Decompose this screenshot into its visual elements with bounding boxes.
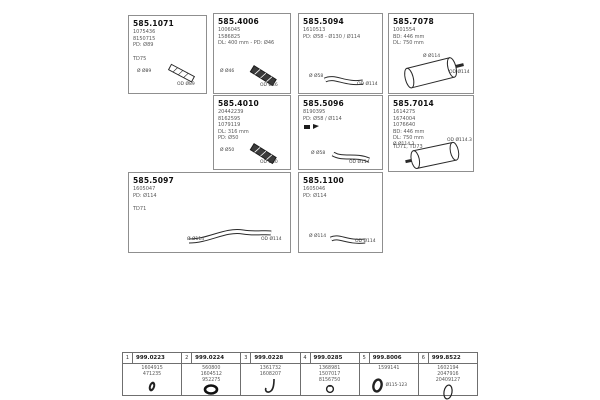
accessory-header: 4 999.0285 bbox=[301, 353, 359, 364]
part-number: 585.1100 bbox=[303, 176, 382, 185]
accessories-table: 1 999.0223 1604915 471235 2 999.0 bbox=[122, 352, 478, 396]
diameter-label: OD Ø114 bbox=[261, 237, 282, 242]
part-box-585-5094: 585.5094 1610513 PD: Ø58 - Ø130 / Ø114 Ø… bbox=[298, 13, 383, 94]
accessory-cell-6: 6 999.8522 1602194 2047916 20409127 bbox=[419, 353, 477, 395]
accessory-header: 6 999.8522 bbox=[419, 353, 477, 364]
part-number: 585.4006 bbox=[218, 17, 290, 26]
clamp-bolt-icon bbox=[325, 384, 335, 394]
elbow-pipe-diagram bbox=[319, 72, 371, 90]
accessory-part-number: 999.0285 bbox=[314, 353, 343, 363]
diameter-label: Ø Ø46 bbox=[220, 69, 234, 74]
clamp-size-label: Ø115-123 bbox=[386, 383, 407, 388]
part-code: DL: 400 mm - PD: Ø46 bbox=[218, 40, 290, 47]
part-number: 585.5097 bbox=[133, 176, 290, 185]
diameter-label: OD Ø46 bbox=[260, 83, 278, 88]
part-code: DL: 750 mm bbox=[393, 40, 473, 47]
diameter-label: Ø Ø89 bbox=[137, 69, 151, 74]
item-number: 3 bbox=[241, 353, 251, 363]
catalog-page: 585.1071 1075436 8150715 PD: Ø89 TD75 Ø … bbox=[0, 0, 600, 400]
clamp-icon bbox=[146, 380, 158, 393]
accessory-codes: 1599141 bbox=[378, 366, 399, 372]
accessory-body: 560800 1604512 952275 bbox=[182, 364, 240, 397]
diameter-label: OD Ø89 bbox=[177, 82, 195, 87]
accessory-codes: 1602194 2047916 20409127 bbox=[436, 366, 460, 384]
accessory-part-number: 999.0228 bbox=[254, 353, 283, 363]
part-box-585-4006: 585.4006 1006045 1586825 DL: 400 mm - PD… bbox=[213, 13, 291, 94]
accessory-header: 1 999.0223 bbox=[123, 353, 181, 364]
part-box-585-5096: 585.5096 8190395 PD: Ø58 / Ø114 Ø Ø58 OD… bbox=[298, 95, 383, 170]
accessory-codes: 1368981 1507017 8156750 bbox=[319, 366, 340, 384]
accessory-header: 5 999.8006 bbox=[360, 353, 418, 364]
accessory-cell-5: 5 999.8006 1599141 Ø115-123 bbox=[360, 353, 419, 395]
item-number: 2 bbox=[182, 353, 192, 363]
accessory-part-number: 999.8006 bbox=[373, 353, 402, 363]
diameter-label: Ø Ø50 bbox=[220, 148, 234, 153]
diameter-label: Ø Ø114 bbox=[187, 237, 204, 242]
accessory-codes: 560800 1604512 952275 bbox=[201, 366, 222, 384]
part-code: 1599141 bbox=[378, 366, 399, 372]
part-code: PD: Ø58 - Ø130 / Ø114 bbox=[303, 34, 382, 41]
part-code: 471235 bbox=[141, 372, 162, 378]
hanger-bracket-icon bbox=[263, 378, 277, 394]
item-number: 5 bbox=[360, 353, 370, 363]
diameter-label: Ø Ø58 bbox=[311, 151, 325, 156]
diameter-label: OD Ø114 bbox=[449, 70, 470, 75]
part-code: PD: Ø58 / Ø114 bbox=[303, 116, 382, 123]
accessory-part-number: 999.0224 bbox=[195, 353, 224, 363]
part-box-585-5097: 585.5097 1605047 PD: Ø114 TD71 Ø Ø114 OD… bbox=[128, 172, 291, 253]
part-box-585-1100: 585.1100 1605046 PD: Ø114 Ø Ø114 OD Ø114 bbox=[298, 172, 383, 253]
accessory-cell-1: 1 999.0223 1604915 471235 bbox=[123, 353, 182, 395]
diameter-label: Ø Ø114.3 bbox=[393, 142, 414, 147]
diameter-label: Ø Ø114 bbox=[423, 54, 440, 59]
accessory-codes: 1361732 1608207 bbox=[260, 366, 281, 378]
long-pipe-diagram bbox=[181, 225, 277, 247]
part-code: PD: Ø114 bbox=[303, 193, 382, 200]
accessory-codes: 1604915 471235 bbox=[141, 366, 162, 378]
diameter-label: OD Ø50 bbox=[260, 160, 278, 165]
part-number: 585.7078 bbox=[393, 17, 473, 26]
accessory-part-number: 999.0223 bbox=[136, 353, 165, 363]
clamp-open-icon bbox=[371, 378, 384, 393]
part-number: 585.7014 bbox=[393, 99, 473, 108]
part-box-585-1071: 585.1071 1075436 8150715 PD: Ø89 TD75 Ø … bbox=[128, 15, 207, 94]
item-number: 4 bbox=[301, 353, 311, 363]
accessory-part-number: 999.8522 bbox=[432, 353, 461, 363]
diameter-label: OD Ø114 bbox=[349, 160, 370, 165]
part-code: PD: Ø114 bbox=[133, 193, 290, 200]
accessory-body: 1604915 471235 bbox=[123, 364, 181, 395]
part-number: 585.5094 bbox=[303, 17, 382, 26]
item-number: 1 bbox=[123, 353, 133, 363]
accessory-cell-3: 3 999.0228 1361732 1608207 bbox=[241, 353, 300, 395]
part-number: 585.1071 bbox=[133, 19, 206, 28]
part-box-585-7014: 585.7014 1614275 1674004 1076640 BD: 446… bbox=[388, 95, 474, 172]
item-number: 6 bbox=[419, 353, 429, 363]
accessory-body: 1602194 2047916 20409127 bbox=[419, 364, 477, 400]
accessory-header: 3 999.0228 bbox=[241, 353, 299, 364]
clamp-ring-icon bbox=[203, 384, 219, 395]
gasket-icon bbox=[304, 125, 310, 129]
part-note: TD75 bbox=[133, 56, 206, 62]
part-box-585-4010: 585.4010 20442239 8162595 1079119 DL: 31… bbox=[213, 95, 291, 170]
diameter-label: Ø Ø58 bbox=[309, 74, 323, 79]
diameter-label: Ø Ø114 bbox=[309, 234, 326, 239]
wedge-icon bbox=[313, 124, 319, 129]
accessory-header: 2 999.0224 bbox=[182, 353, 240, 364]
part-number: 585.5096 bbox=[303, 99, 382, 108]
pipe-diagram bbox=[240, 140, 286, 170]
part-code: PD: Ø89 bbox=[133, 42, 206, 49]
accessory-cell-4: 4 999.0285 1368981 1507017 8156750 bbox=[301, 353, 360, 395]
gasket-ring-icon bbox=[442, 384, 454, 400]
accessory-body: 1361732 1608207 bbox=[241, 364, 299, 396]
diameter-label: OD Ø114 bbox=[355, 239, 376, 244]
diameter-label: OD Ø114.3 bbox=[447, 138, 472, 143]
part-number: 585.4010 bbox=[218, 99, 290, 108]
diameter-label: OD Ø114 bbox=[357, 82, 378, 87]
fitting-icons bbox=[304, 124, 319, 129]
accessory-body: 1599141 Ø115-123 bbox=[360, 364, 418, 395]
part-box-585-7078: 585.7078 1001554 BD: 446 mm DL: 750 mm Ø… bbox=[388, 13, 474, 94]
part-note: TD71 bbox=[133, 206, 290, 212]
accessory-cell-2: 2 999.0224 560800 1604512 952275 bbox=[182, 353, 241, 395]
accessory-body: 1368981 1507017 8156750 bbox=[301, 364, 359, 396]
